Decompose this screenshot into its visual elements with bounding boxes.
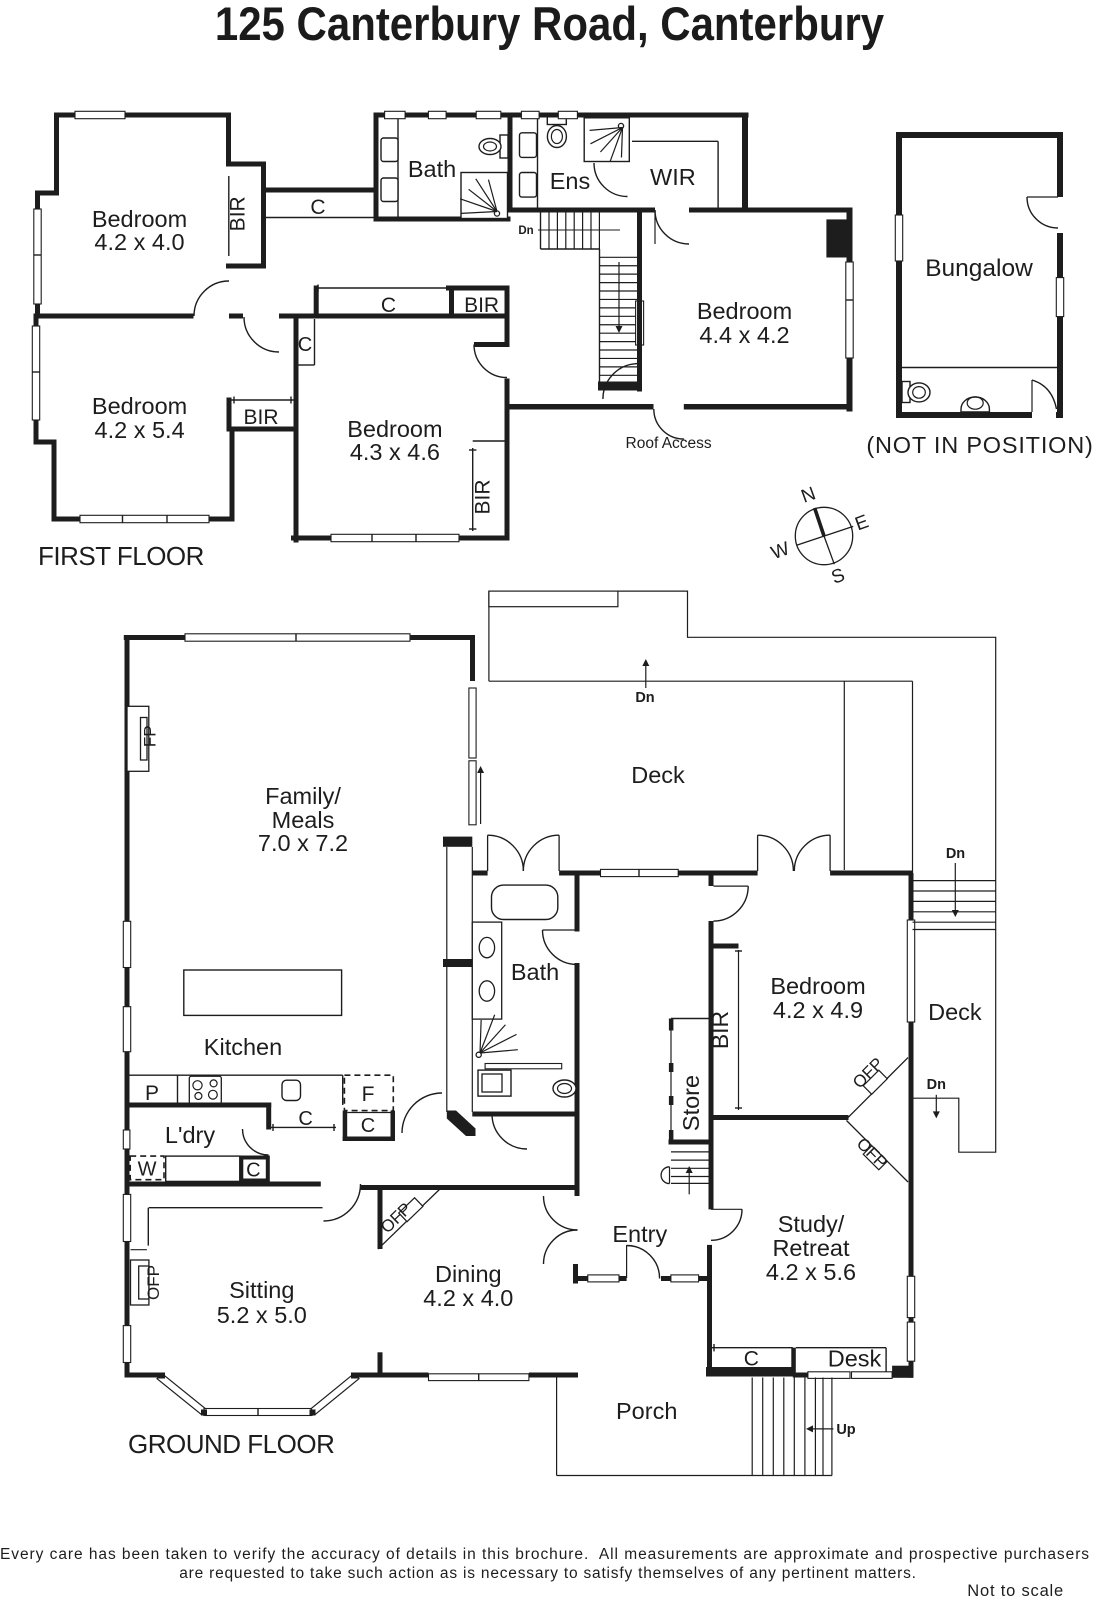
svg-text:4.3 x 4.6: 4.3 x 4.6 [350,439,440,465]
svg-text:Dn: Dn [946,846,965,862]
svg-text:Bungalow: Bungalow [925,255,1033,282]
svg-text:Bath: Bath [408,156,456,182]
svg-text:FP: FP [141,725,160,747]
svg-text:Store: Store [678,1075,704,1131]
svg-text:4.4 x 4.2: 4.4 x 4.2 [699,322,789,348]
svg-text:4.2 x 5.4: 4.2 x 5.4 [95,417,185,443]
svg-text:BIR: BIR [472,479,495,514]
svg-text:4.2 x 4.0: 4.2 x 4.0 [423,1285,513,1311]
svg-text:P: P [145,1082,159,1105]
svg-text:4.2 x 5.6: 4.2 x 5.6 [766,1259,856,1285]
svg-text:F: F [362,1083,375,1106]
svg-text:(NOT IN POSITION): (NOT IN POSITION) [866,432,1093,458]
svg-text:Roof Access: Roof Access [626,435,712,452]
svg-text:Ens: Ens [550,168,591,194]
svg-text:GROUND FLOOR: GROUND FLOOR [128,1429,334,1459]
svg-text:C: C [361,1115,375,1137]
svg-text:5.2 x 5.0: 5.2 x 5.0 [217,1302,307,1328]
svg-text:Dn: Dn [635,690,654,706]
svg-text:4.2 x 4.0: 4.2 x 4.0 [94,229,184,255]
svg-text:Not to scale: Not to scale [967,1582,1064,1600]
svg-text:C: C [246,1160,260,1182]
svg-text:Up: Up [836,1422,855,1438]
svg-text:Dining: Dining [435,1261,502,1287]
svg-text:FIRST FLOOR: FIRST FLOOR [38,541,204,571]
svg-text:4.2 x 4.9: 4.2 x 4.9 [773,997,863,1023]
svg-text:Kitchen: Kitchen [204,1034,282,1060]
svg-text:Deck: Deck [631,762,685,788]
svg-text:W: W [138,1159,157,1181]
svg-text:BIR: BIR [227,196,250,231]
svg-text:Dn: Dn [927,1077,946,1093]
svg-text:WIR: WIR [650,164,696,190]
svg-text:Desk: Desk [828,1346,882,1372]
svg-text:Family/: Family/ [265,783,341,809]
svg-text:Porch: Porch [616,1398,677,1424]
svg-text:Sitting: Sitting [229,1277,294,1303]
svg-text:Bedroom: Bedroom [770,973,865,999]
svg-text:C: C [310,196,325,219]
svg-text:are requested to take such act: are requested to take such action as is … [179,1565,917,1582]
svg-text:Study/: Study/ [778,1211,845,1237]
svg-text:125 Canterbury Road, Canterbur: 125 Canterbury Road, Canterbury [215,0,884,51]
svg-text:Dn: Dn [518,225,533,237]
svg-text:Entry: Entry [612,1221,667,1247]
svg-text:BIR: BIR [243,406,278,429]
svg-text:Bath: Bath [511,959,559,985]
svg-text:BIR: BIR [707,1011,733,1049]
svg-text:C: C [381,294,396,317]
svg-text:7.0 x 7.2: 7.0 x 7.2 [258,830,348,856]
svg-text:C: C [298,334,312,356]
svg-text:C: C [298,1108,312,1130]
svg-text:BIR: BIR [464,294,499,317]
svg-text:L'dry: L'dry [165,1122,215,1148]
svg-text:Deck: Deck [928,999,982,1025]
svg-text:Bedroom: Bedroom [697,298,792,324]
svg-text:Retreat: Retreat [772,1235,850,1261]
svg-text:Bedroom: Bedroom [92,393,187,419]
svg-text:OFP: OFP [144,1265,163,1300]
svg-text:Every care has been taken to v: Every care has been taken to verify the … [0,1546,1090,1563]
